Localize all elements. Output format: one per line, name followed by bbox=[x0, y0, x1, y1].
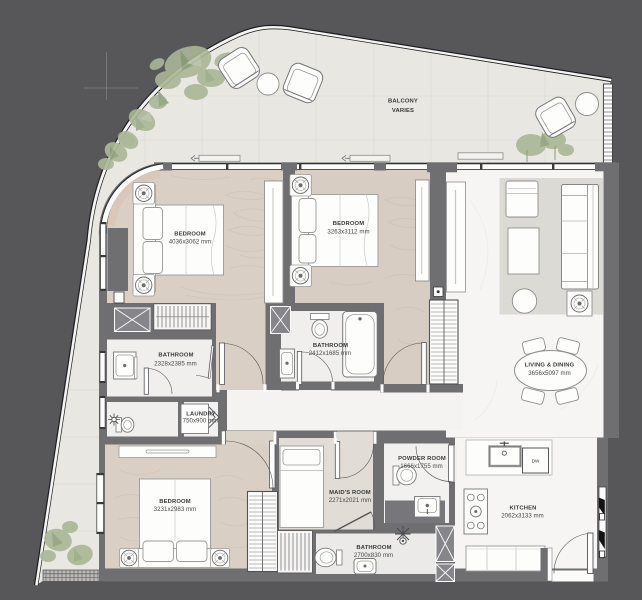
svg-text:LIVING & DINING: LIVING & DINING bbox=[525, 363, 575, 369]
svg-text:MAID'S ROOM: MAID'S ROOM bbox=[329, 490, 371, 496]
svg-text:2271x2021 mm: 2271x2021 mm bbox=[329, 497, 372, 504]
svg-text:3656x5097 mm: 3656x5097 mm bbox=[528, 370, 571, 377]
svg-text:DW: DW bbox=[532, 459, 540, 464]
svg-text:2062x3133 mm: 2062x3133 mm bbox=[501, 513, 544, 520]
svg-text:BEDROOM: BEDROOM bbox=[333, 221, 365, 227]
svg-text:POWDER ROOM: POWDER ROOM bbox=[398, 456, 446, 462]
svg-text:3231x2983 mm: 3231x2983 mm bbox=[154, 506, 197, 513]
svg-text:BEDROOM: BEDROOM bbox=[159, 499, 191, 505]
svg-text:2328x2385 mm: 2328x2385 mm bbox=[154, 361, 197, 368]
svg-text:BATHROOM: BATHROOM bbox=[158, 353, 193, 359]
svg-text:VARIES: VARIES bbox=[392, 108, 414, 114]
svg-text:2412x1685 mm: 2412x1685 mm bbox=[309, 350, 352, 357]
svg-text:1666x1755 mm: 1666x1755 mm bbox=[400, 463, 443, 470]
svg-text:KITCHEN: KITCHEN bbox=[509, 506, 536, 512]
svg-text:4036x3062 mm: 4036x3062 mm bbox=[169, 239, 212, 246]
svg-text:BATHROOM: BATHROOM bbox=[356, 545, 391, 551]
svg-text:BALCONY: BALCONY bbox=[388, 99, 418, 105]
svg-text:2700x830 mm: 2700x830 mm bbox=[354, 552, 393, 559]
svg-text:3263x3112 mm: 3263x3112 mm bbox=[327, 229, 369, 236]
svg-text:750x900 mm: 750x900 mm bbox=[183, 417, 219, 424]
svg-text:BEDROOM: BEDROOM bbox=[174, 232, 206, 238]
svg-text:BATHROOM: BATHROOM bbox=[313, 343, 348, 349]
